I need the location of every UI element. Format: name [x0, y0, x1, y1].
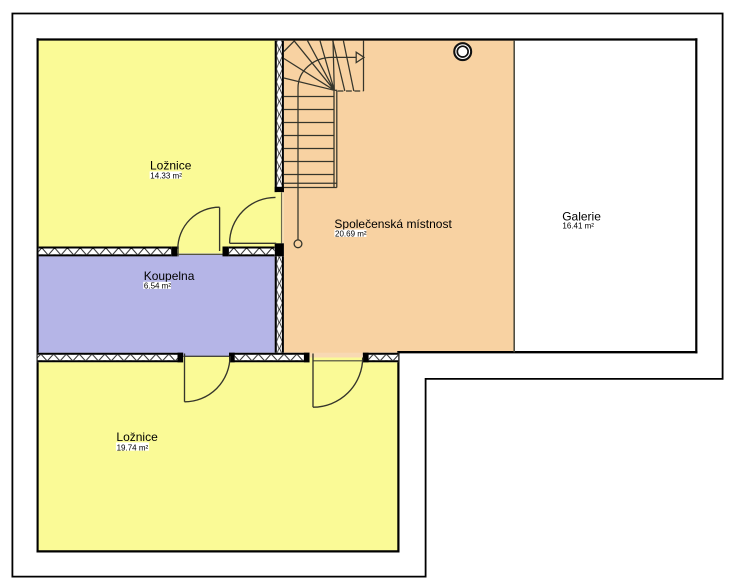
svg-text:Ložnice: Ložnice — [116, 430, 158, 444]
svg-text:6.54 m²: 6.54 m² — [144, 282, 171, 291]
svg-text:14.33 m²: 14.33 m² — [150, 171, 182, 180]
svg-text:20.69 m²: 20.69 m² — [335, 229, 367, 238]
svg-text:16.41 m²: 16.41 m² — [562, 222, 594, 231]
svg-text:19.74 m²: 19.74 m² — [117, 444, 149, 453]
